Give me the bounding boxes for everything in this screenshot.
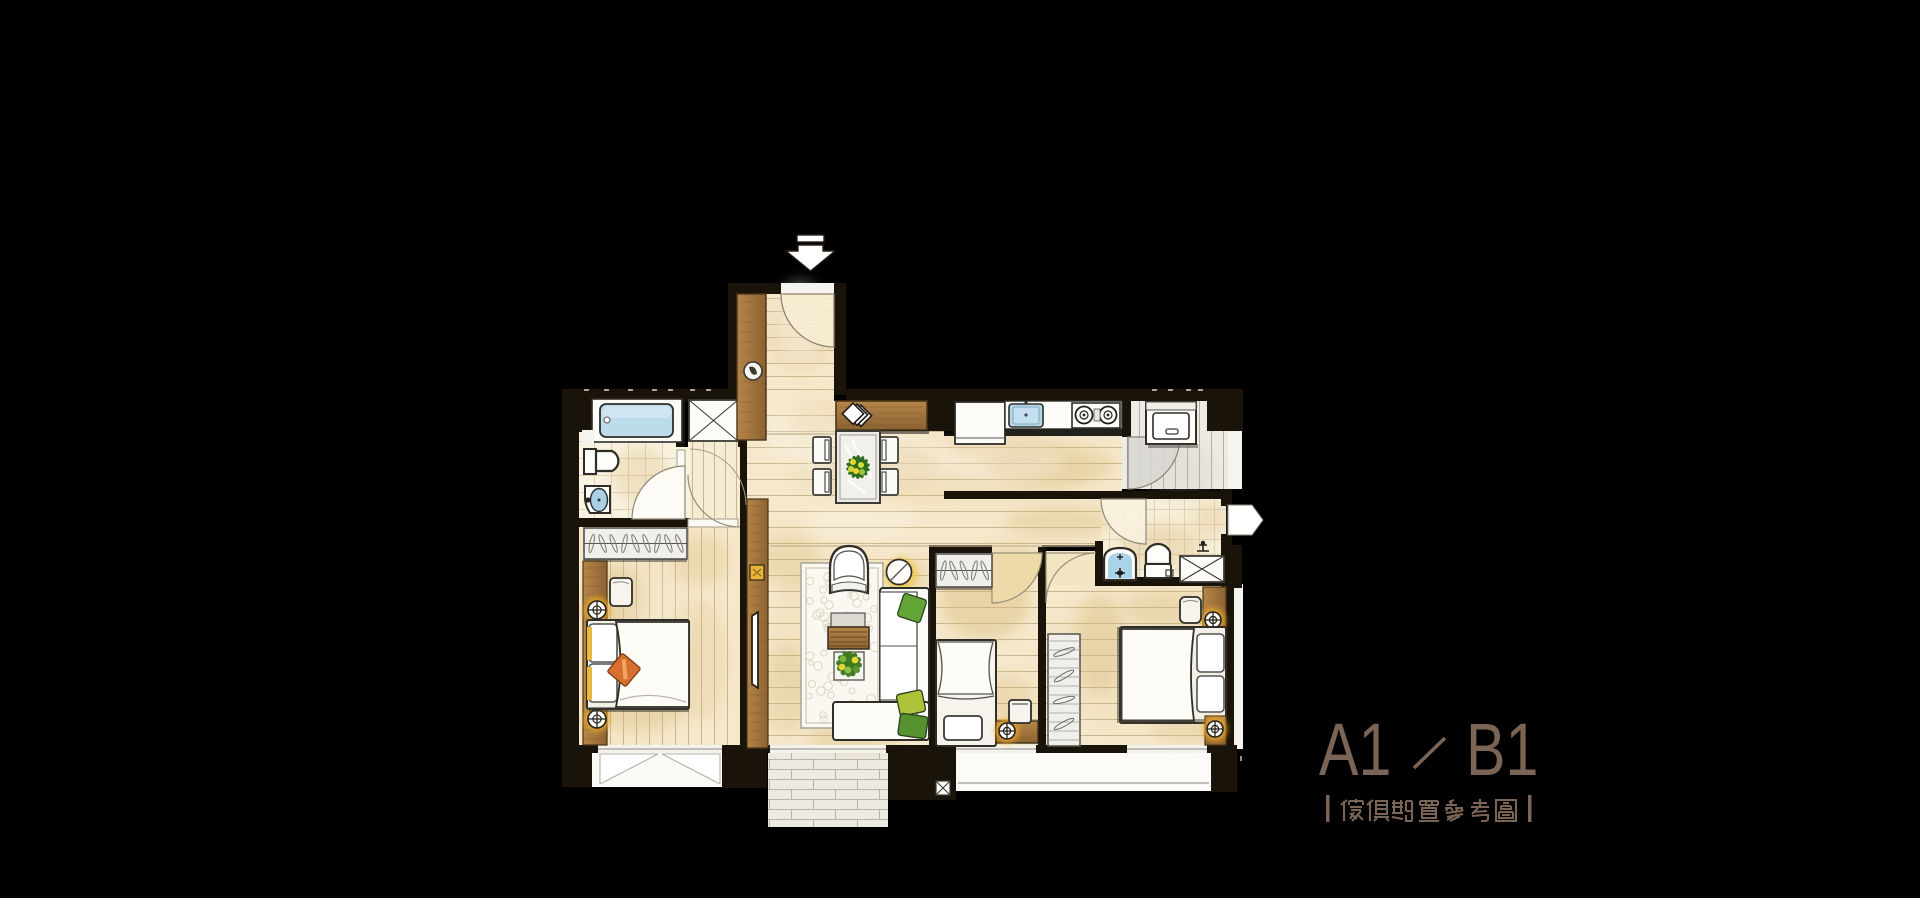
svg-text:B1: B1: [1466, 709, 1538, 792]
svg-text:A1: A1: [1319, 709, 1391, 792]
